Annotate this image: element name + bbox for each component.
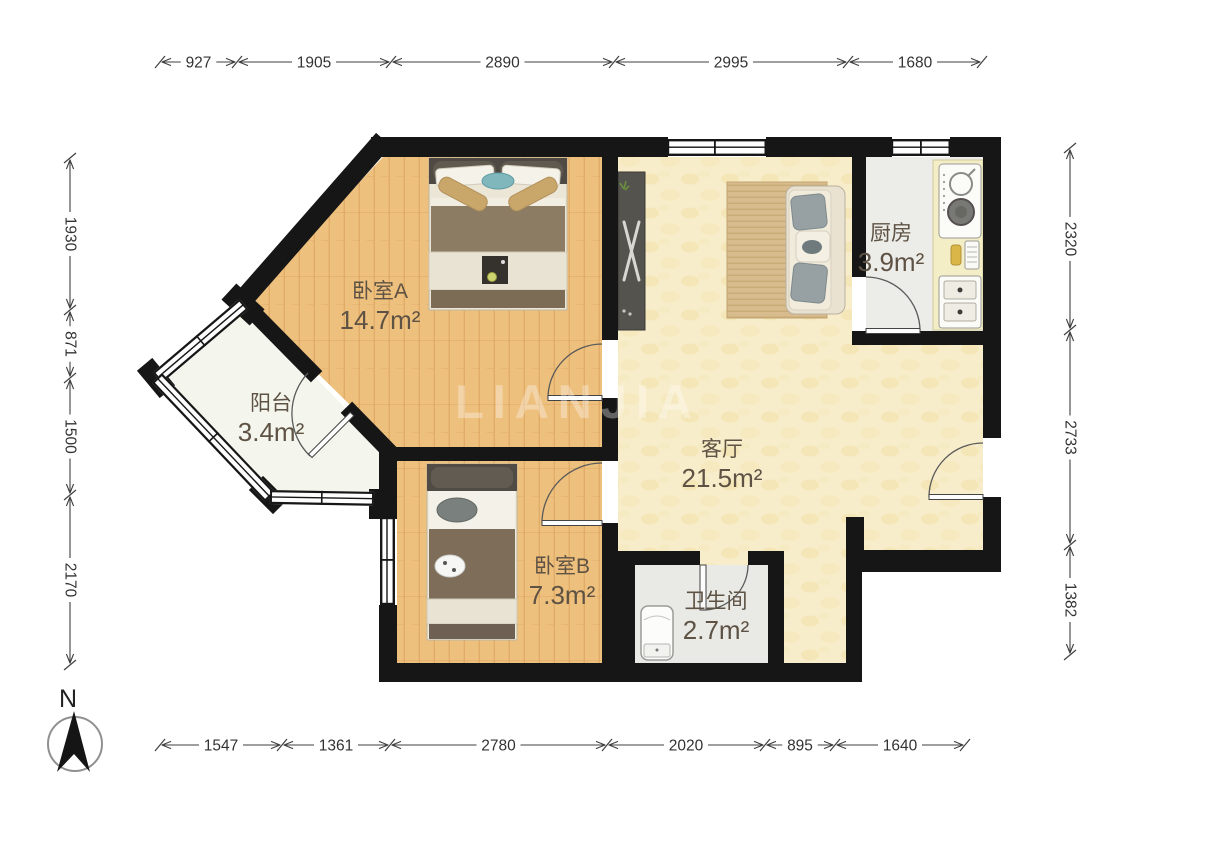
room-name: 卧室A xyxy=(352,280,408,303)
dimension-value: 1640 xyxy=(883,738,918,755)
dimension-value: 927 xyxy=(186,55,212,72)
north-compass-icon: N xyxy=(48,685,102,772)
dimension-value: 2780 xyxy=(481,738,516,755)
room-area: 14.7m² xyxy=(340,305,421,335)
dimension-value: 1905 xyxy=(297,55,331,72)
dimension-value: 2170 xyxy=(62,563,79,598)
dimension-value: 871 xyxy=(62,331,79,357)
room-name: 卧室B xyxy=(534,555,590,578)
dimension-value: 1361 xyxy=(319,738,353,755)
room-area: 21.5m² xyxy=(682,463,763,493)
dimension-value: 1547 xyxy=(204,738,238,755)
single-bed xyxy=(427,464,517,640)
compass-north-label: N xyxy=(59,685,77,713)
room-name: 卫生间 xyxy=(685,590,748,613)
dimension-value: 1500 xyxy=(62,419,79,454)
room-name: 阳台 xyxy=(250,392,292,415)
dimension-bottom: 15471361278020208951640 xyxy=(155,735,970,755)
dimension-left: 193087115002170 xyxy=(60,153,80,670)
dimension-value: 2995 xyxy=(714,55,748,72)
room-label-bathroom: 卫生间2.7m² xyxy=(683,590,750,645)
sofa-and-rug xyxy=(727,182,845,318)
dimension-value: 1680 xyxy=(898,55,933,72)
balcony-window-south xyxy=(270,490,374,506)
floorplan-page: LIANJIA 卧室A14.7m²阳台3.4m²卧室B7.3m²客厅21.5m²… xyxy=(0,0,1213,842)
dimension-top: 9271905289029951680 xyxy=(155,52,987,72)
dimension-value: 2020 xyxy=(669,738,704,755)
room-area: 7.3m² xyxy=(529,580,596,610)
dimension-value: 1382 xyxy=(1062,583,1079,617)
room-area: 3.4m² xyxy=(238,417,305,447)
bathroom-fixture xyxy=(641,606,673,660)
room-label-bedroom-b: 卧室B7.3m² xyxy=(529,555,596,610)
room-area: 3.9m² xyxy=(858,247,925,277)
floor-plan-canvas: LIANJIA 卧室A14.7m²阳台3.4m²卧室B7.3m²客厅21.5m²… xyxy=(0,0,1213,842)
wardrobe xyxy=(618,172,645,330)
room-area: 2.7m² xyxy=(683,615,750,645)
dimension-value: 1930 xyxy=(62,217,79,252)
dimension-value: 2890 xyxy=(485,55,520,72)
dimension-right: 232027331382 xyxy=(1060,143,1080,660)
kitchen-window xyxy=(891,139,951,156)
living-room-window xyxy=(667,139,767,156)
dimension-value: 2733 xyxy=(1062,420,1079,454)
room-name: 客厅 xyxy=(701,438,743,461)
double-bed xyxy=(429,158,567,310)
bedroom-b-window xyxy=(380,517,395,605)
kitchen-counter xyxy=(933,160,983,330)
lianjia-watermark: LIANJIA xyxy=(455,375,701,428)
dimension-value: 895 xyxy=(787,738,813,755)
dimension-value: 2320 xyxy=(1062,222,1079,257)
room-name: 厨房 xyxy=(870,222,912,245)
